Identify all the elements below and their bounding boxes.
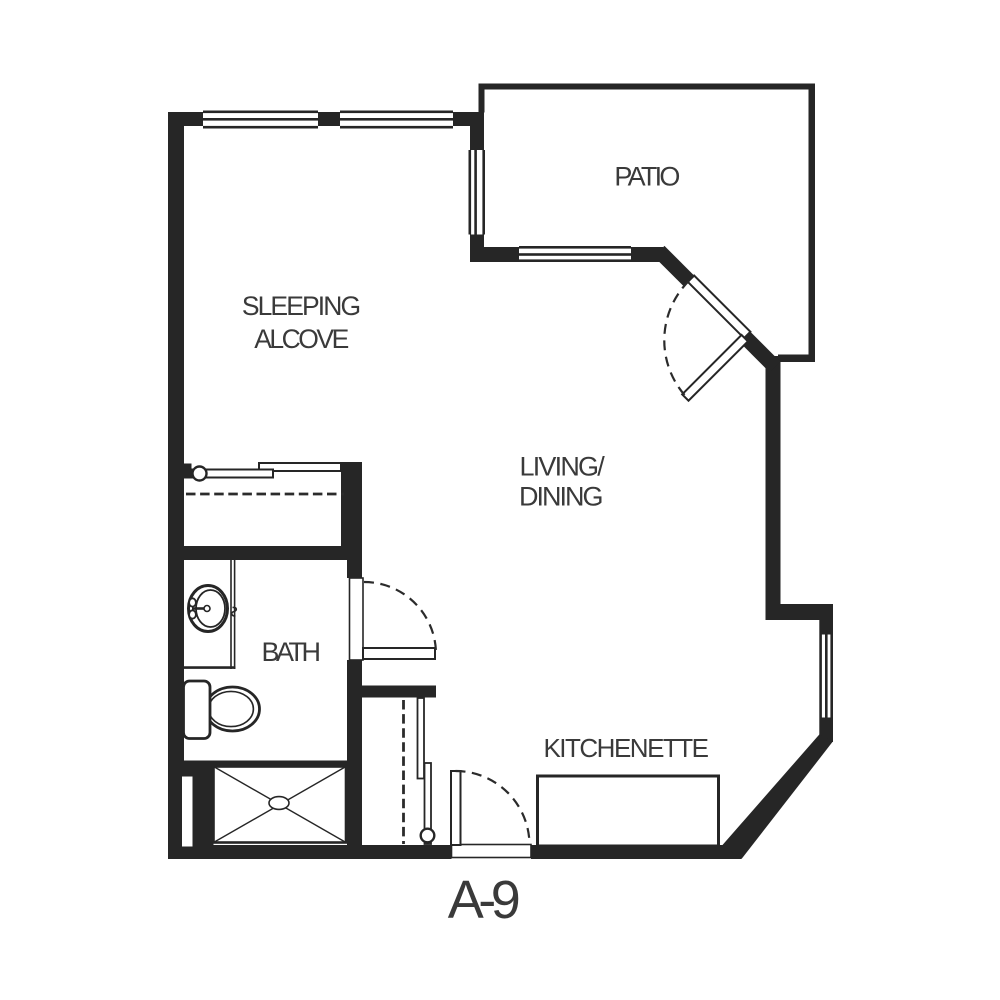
svg-text:A-9: A-9: [448, 870, 519, 930]
svg-text:DINING: DINING: [519, 482, 602, 512]
svg-text:BATH: BATH: [261, 637, 319, 667]
svg-text:LIVING/: LIVING/: [520, 452, 606, 482]
svg-text:SLEEPING: SLEEPING: [242, 291, 360, 321]
svg-text:KITCHENETTE: KITCHENETTE: [543, 733, 708, 763]
svg-text:ALCOVE: ALCOVE: [254, 324, 348, 354]
svg-text:PATIO: PATIO: [614, 162, 679, 192]
